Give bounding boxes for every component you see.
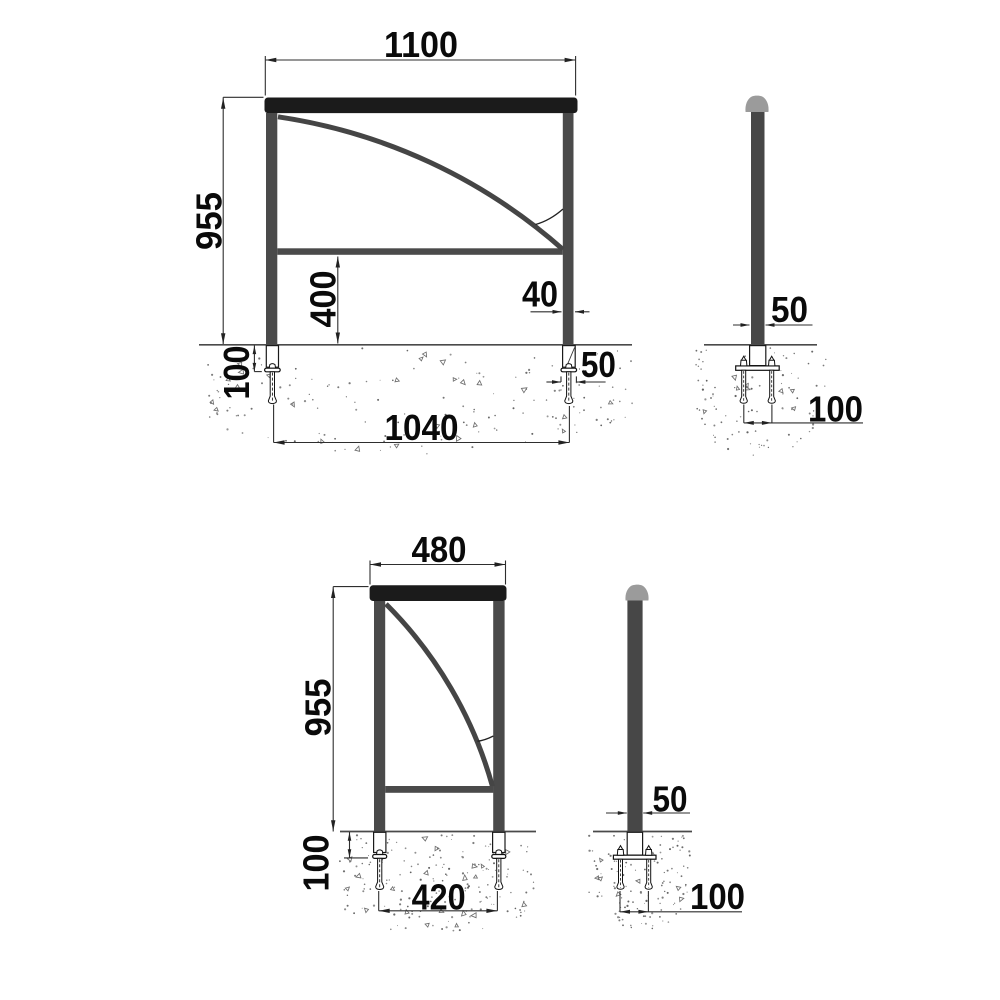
svg-text:50: 50 [771,289,808,330]
svg-text:955: 955 [298,679,339,737]
svg-text:100: 100 [296,835,337,892]
svg-text:1100: 1100 [384,24,458,65]
svg-text:480: 480 [412,529,467,570]
svg-text:100: 100 [690,876,745,917]
svg-text:40: 40 [522,274,558,315]
svg-text:100: 100 [216,346,257,400]
svg-text:1040: 1040 [385,407,459,448]
svg-text:50: 50 [581,344,616,385]
